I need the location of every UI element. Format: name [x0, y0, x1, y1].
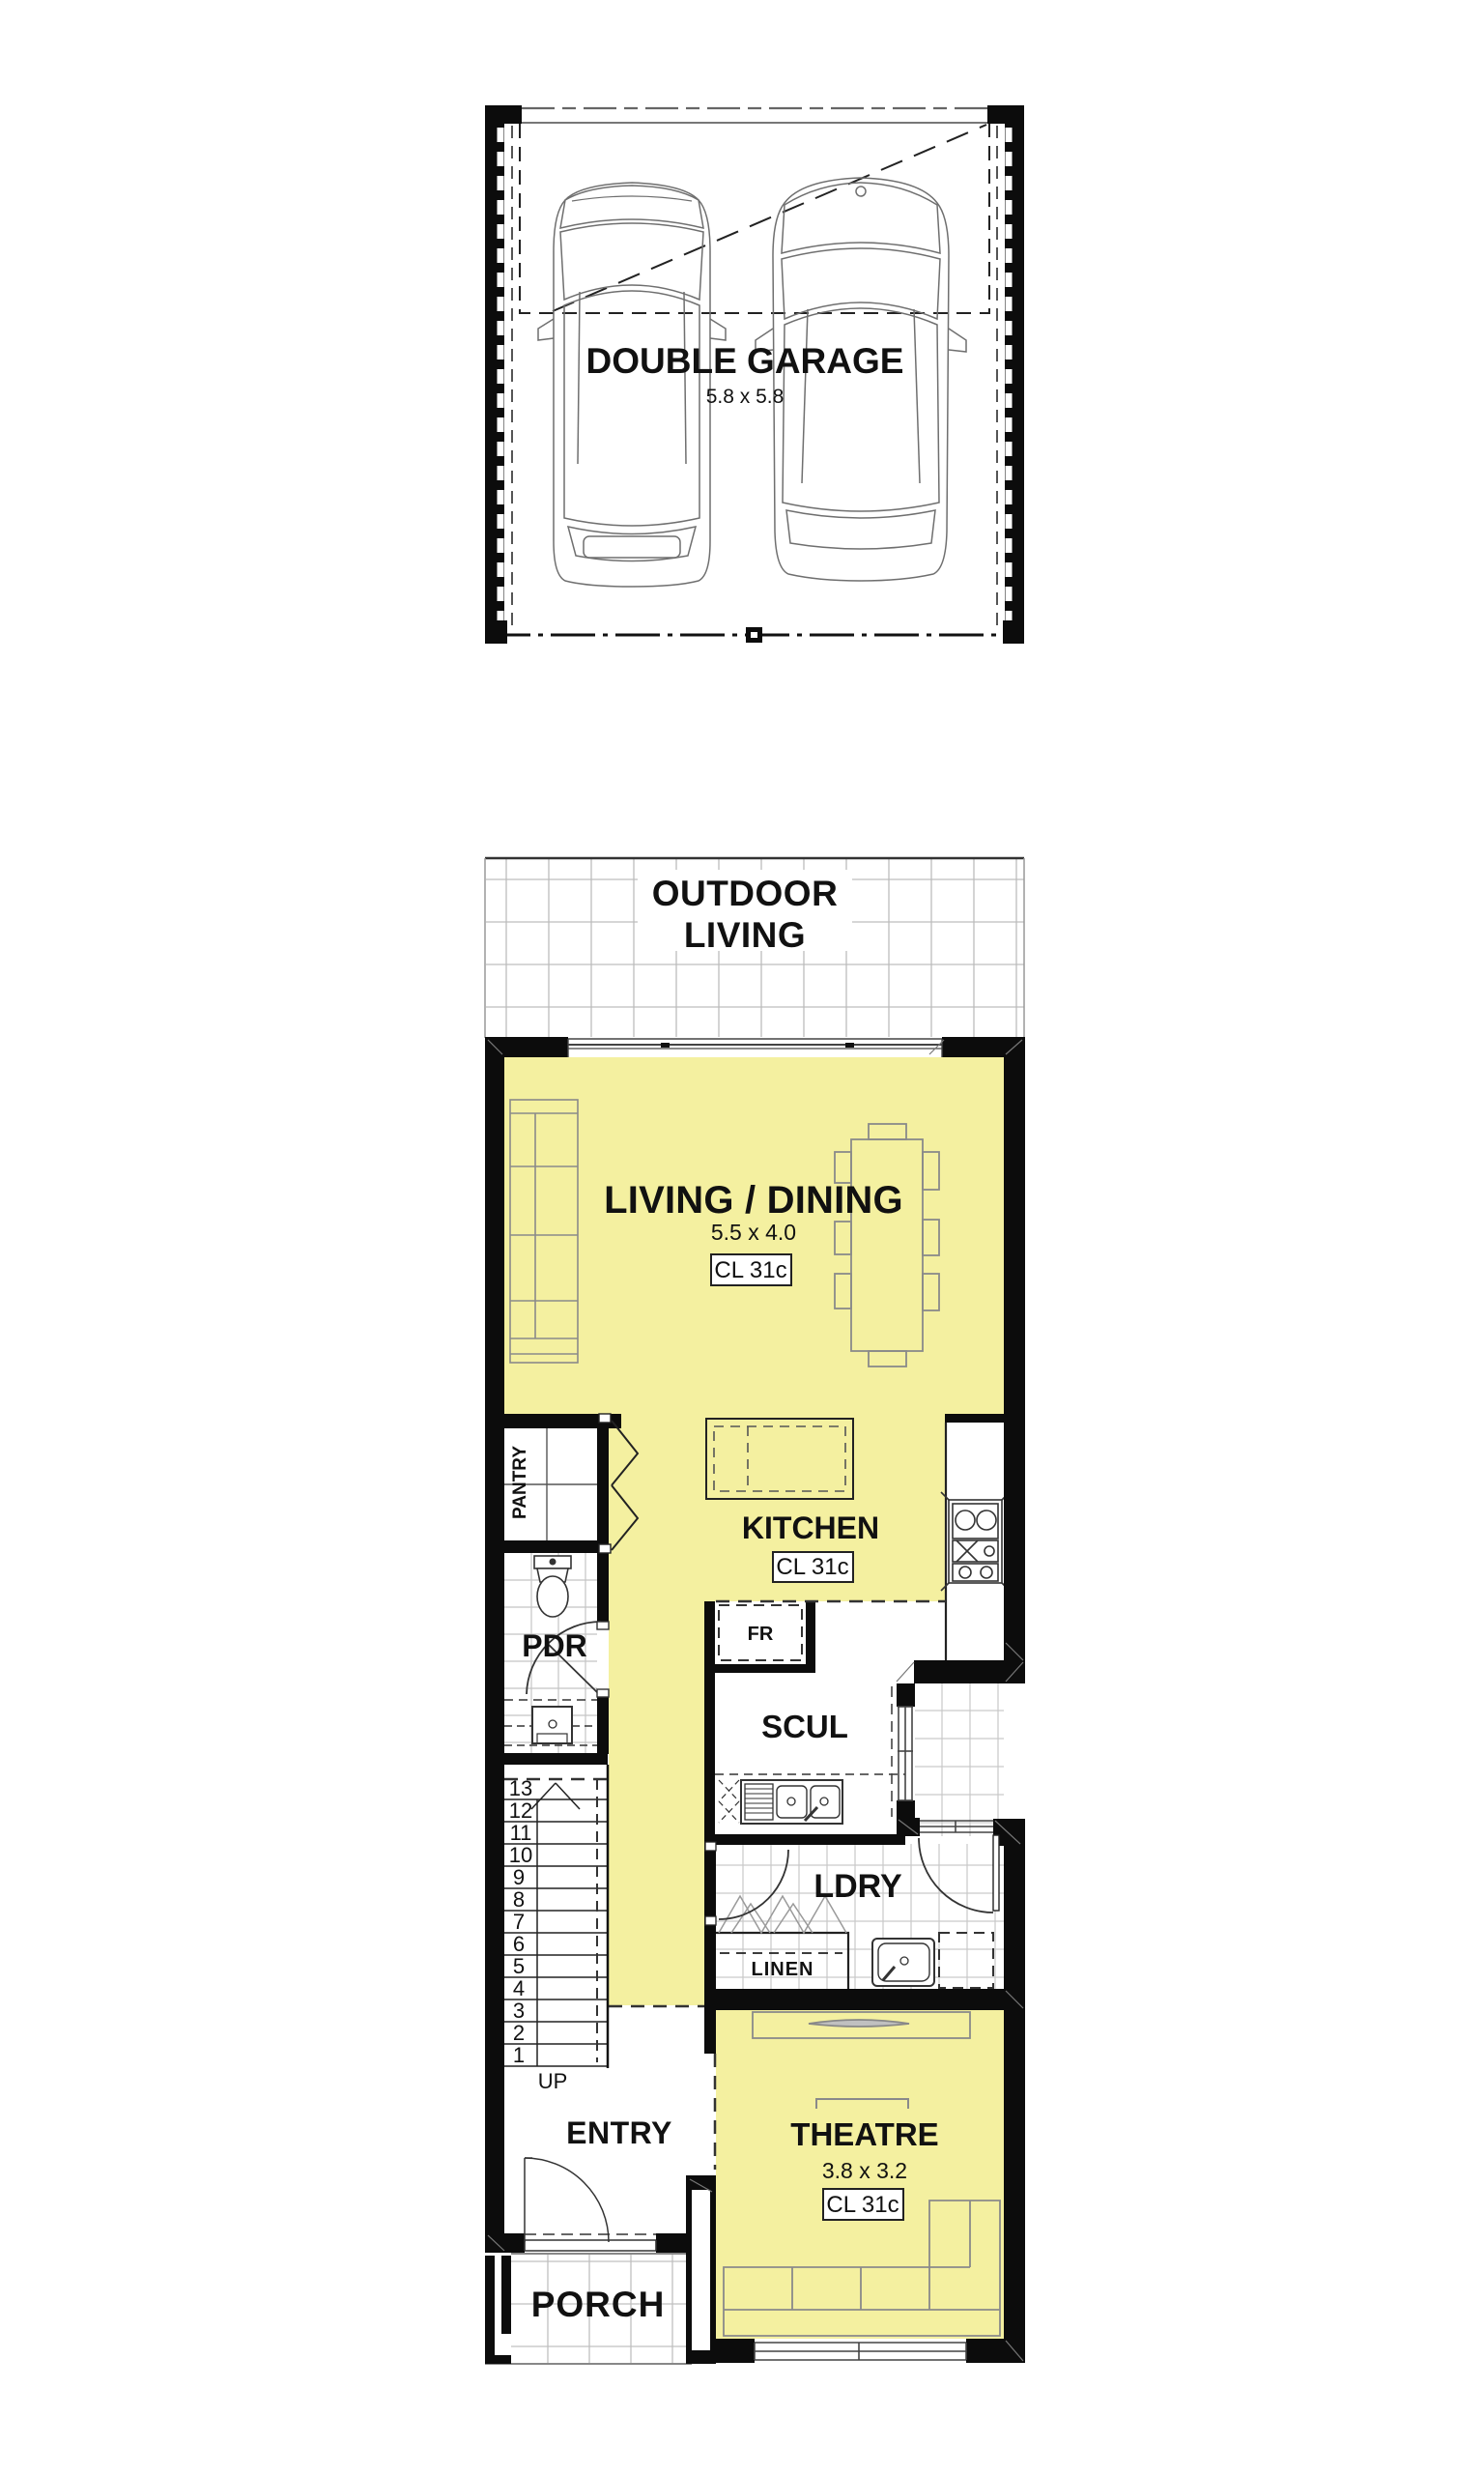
svg-text:5: 5: [513, 1954, 525, 1978]
svg-text:SCUL: SCUL: [761, 1709, 848, 1744]
svg-text:LIVING: LIVING: [684, 915, 806, 955]
svg-text:OUTDOOR: OUTDOOR: [652, 874, 839, 913]
svg-text:FR: FR: [748, 1624, 774, 1645]
svg-text:1: 1: [513, 2043, 525, 2067]
svg-text:9: 9: [513, 1865, 525, 1889]
svg-text:KITCHEN: KITCHEN: [742, 1510, 879, 1545]
svg-text:12: 12: [509, 1798, 532, 1823]
svg-text:ENTRY: ENTRY: [566, 2115, 672, 2150]
svg-text:6: 6: [513, 1932, 525, 1956]
svg-text:CL 31c: CL 31c: [714, 1257, 786, 1283]
svg-text:CL 31c: CL 31c: [776, 1554, 848, 1580]
svg-text:PDR: PDR: [522, 1628, 587, 1663]
svg-text:3: 3: [513, 1999, 525, 2023]
svg-text:LINEN: LINEN: [752, 1959, 814, 1980]
svg-text:2: 2: [513, 2021, 525, 2045]
svg-text:5.5 x 4.0: 5.5 x 4.0: [711, 1220, 796, 1245]
svg-text:UP: UP: [538, 2069, 568, 2093]
svg-text:PANTRY: PANTRY: [510, 1446, 530, 1519]
svg-text:LDRY: LDRY: [813, 1868, 902, 1905]
svg-text:10: 10: [509, 1843, 532, 1867]
svg-text:CL 31c: CL 31c: [826, 2192, 899, 2218]
svg-text:7: 7: [513, 1910, 525, 1934]
svg-text:3.8 x 3.2: 3.8 x 3.2: [822, 2158, 907, 2183]
svg-text:PORCH: PORCH: [531, 2285, 666, 2324]
svg-text:8: 8: [513, 1887, 525, 1912]
svg-text:4: 4: [513, 1976, 525, 2000]
svg-text:11: 11: [510, 1821, 532, 1845]
svg-text:LIVING / DINING: LIVING / DINING: [604, 1179, 903, 1222]
svg-text:DOUBLE GARAGE: DOUBLE GARAGE: [586, 341, 904, 381]
svg-text:5.8 x 5.8: 5.8 x 5.8: [706, 386, 785, 408]
svg-text:THEATRE: THEATRE: [790, 2116, 938, 2152]
svg-text:13: 13: [509, 1776, 532, 1800]
